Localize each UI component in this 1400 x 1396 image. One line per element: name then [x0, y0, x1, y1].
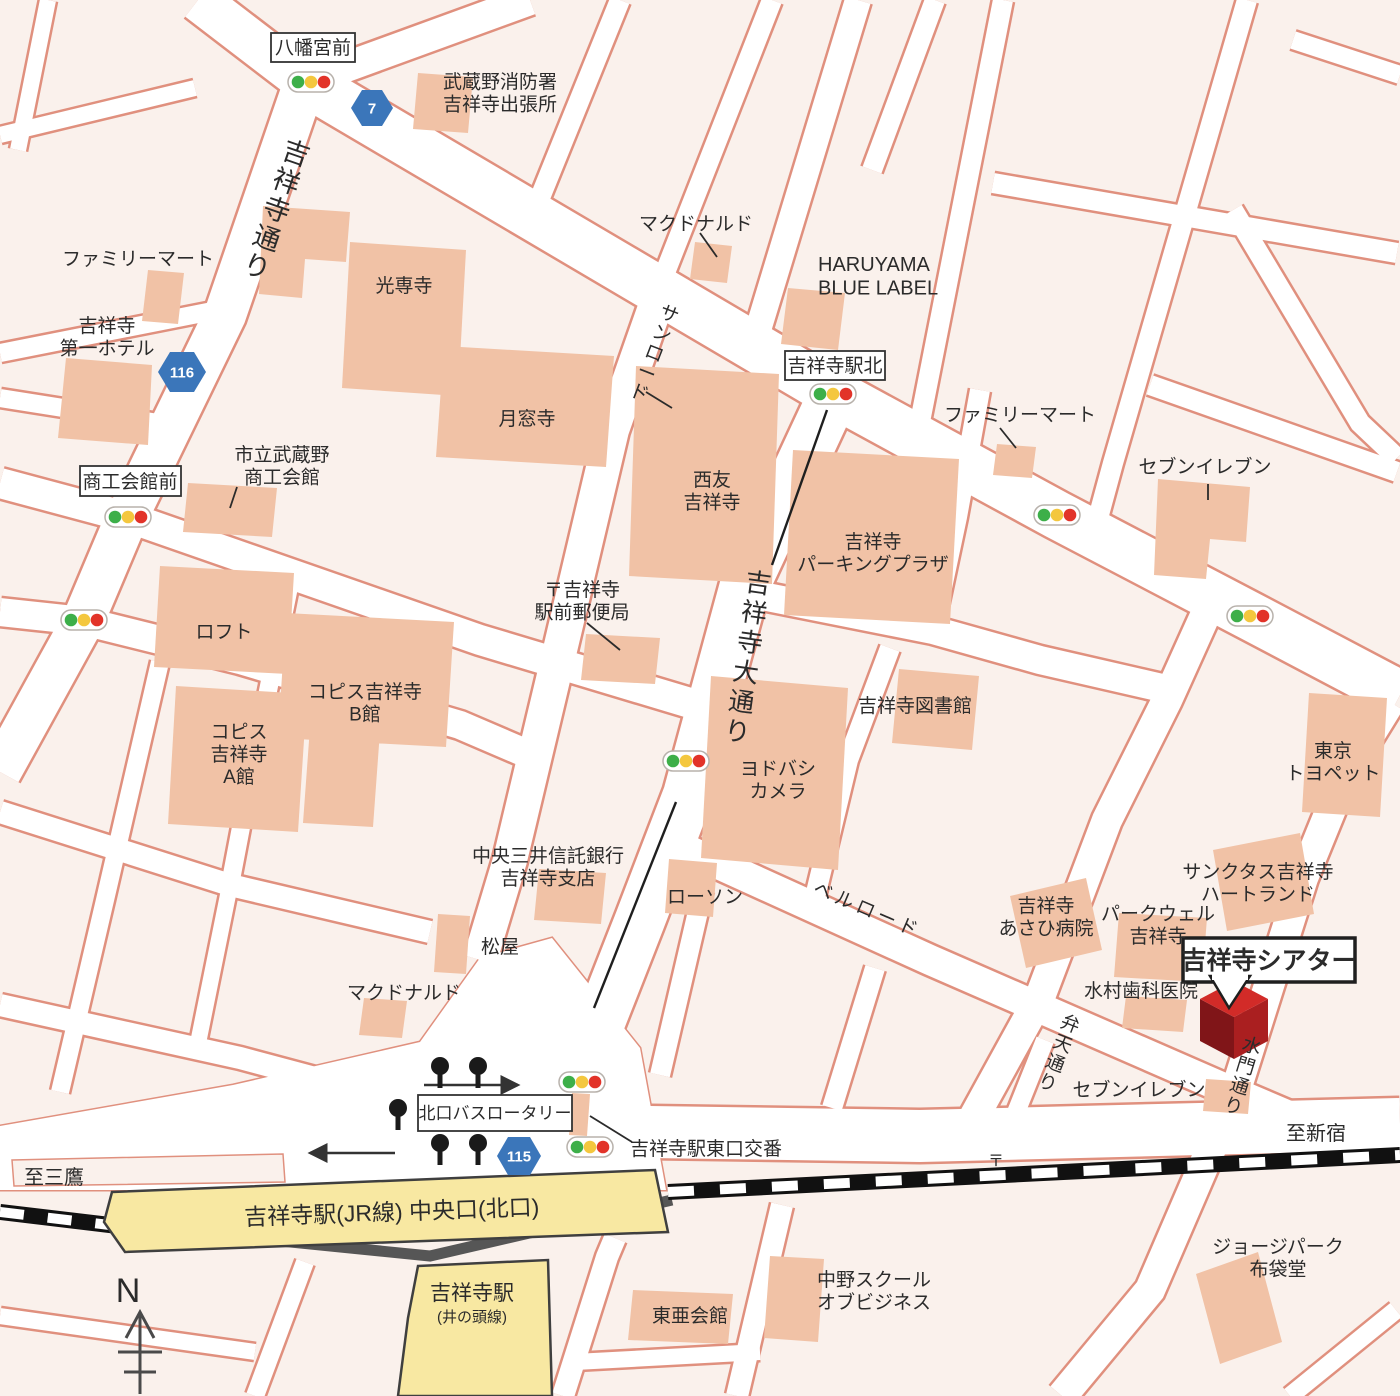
svg-text:吉祥寺駅北: 吉祥寺駅北: [787, 355, 882, 377]
kichijoji-theatre-access-map: 〒: [0, 0, 1400, 1396]
building-matsuya: [434, 914, 470, 974]
label-toa-kaikan: 東亜会館: [652, 1305, 728, 1327]
svg-text:八幡宮前: 八幡宮前: [275, 37, 351, 59]
traffic-light-icon: [105, 507, 151, 527]
svg-text:7: 7: [368, 101, 376, 118]
label-seveneleven-top: セブンイレブン: [1138, 455, 1271, 478]
label-familymart-topleft: ファミリーマート: [62, 249, 214, 270]
traffic-light-icon: [663, 751, 709, 771]
label-inokashira-line: (井の頭線): [437, 1309, 507, 1326]
label-seveneleven-bottom: セブンイレブン: [1072, 1078, 1205, 1101]
building-daiichi-hotel: [58, 358, 152, 445]
direction-mitaka: 至三鷹: [24, 1166, 84, 1189]
sign-kichijoji-eki-kita: 吉祥寺駅北: [785, 351, 885, 380]
label-gessoji: 月窓寺: [498, 408, 555, 430]
building-familymart-right: [993, 444, 1036, 478]
label-police-box: 吉祥寺駅東口交番: [630, 1138, 782, 1160]
traffic-light-icon: [810, 384, 856, 404]
north-label: N: [116, 1272, 141, 1310]
building-post-office: [581, 634, 660, 684]
building-inokashira-station: [398, 1260, 552, 1396]
label-haruyama: HARUYAMABLUE LABEL: [818, 254, 938, 300]
label-mcdonalds-top: マクドナルド: [639, 213, 753, 235]
building-mcdonalds-bottom: [359, 998, 407, 1038]
label-kosenji: 光専寺: [375, 275, 432, 297]
direction-shinjuku: 至新宿: [1286, 1122, 1346, 1145]
building-gessoji: [436, 346, 614, 467]
postal-mark-small: 〒: [988, 1153, 1004, 1170]
label-matsuya: 松屋: [481, 936, 519, 958]
traffic-light-icon: [61, 610, 107, 630]
svg-text:北口バスロータリー: 北口バスロータリー: [419, 1104, 572, 1123]
traffic-light-icon: [567, 1137, 613, 1157]
label-inokashira-station: 吉祥寺駅: [430, 1282, 514, 1305]
svg-text:115: 115: [507, 1149, 531, 1166]
label-mizumura-dental: 水村歯科医院: [1084, 980, 1198, 1002]
building-loft: [154, 566, 294, 674]
traffic-light-icon: [1034, 505, 1080, 525]
label-yodobashi: ヨドバシカメラ: [740, 759, 816, 802]
label-library: 吉祥寺図書館: [858, 695, 972, 717]
label-familymart-right: ファミリーマート: [944, 405, 1096, 426]
sign-hachimangu-mae: 八幡宮前: [271, 33, 355, 62]
theatre-name: 吉祥寺シアター: [1181, 946, 1356, 975]
label-loft: ロフト: [195, 622, 252, 643]
traffic-light-icon: [288, 72, 334, 92]
svg-text:商工会館前: 商工会館前: [82, 471, 177, 493]
map-canvas: 〒: [0, 0, 1400, 1396]
label-lawson: ローソン: [667, 887, 743, 908]
building-nakano-school: [764, 1256, 824, 1342]
building-shoko-kaikan: [183, 483, 277, 537]
sign-shoko-kaikan-mae: 商工会館前: [80, 466, 181, 496]
label-mcdonalds-bottom: マクドナルド: [347, 982, 461, 1004]
building-coppice-a-annex: [303, 727, 380, 827]
svg-text:116: 116: [170, 365, 194, 382]
traffic-light-icon: [1227, 606, 1273, 626]
building-familymart-topleft: [142, 270, 184, 324]
traffic-light-icon: [559, 1072, 605, 1092]
